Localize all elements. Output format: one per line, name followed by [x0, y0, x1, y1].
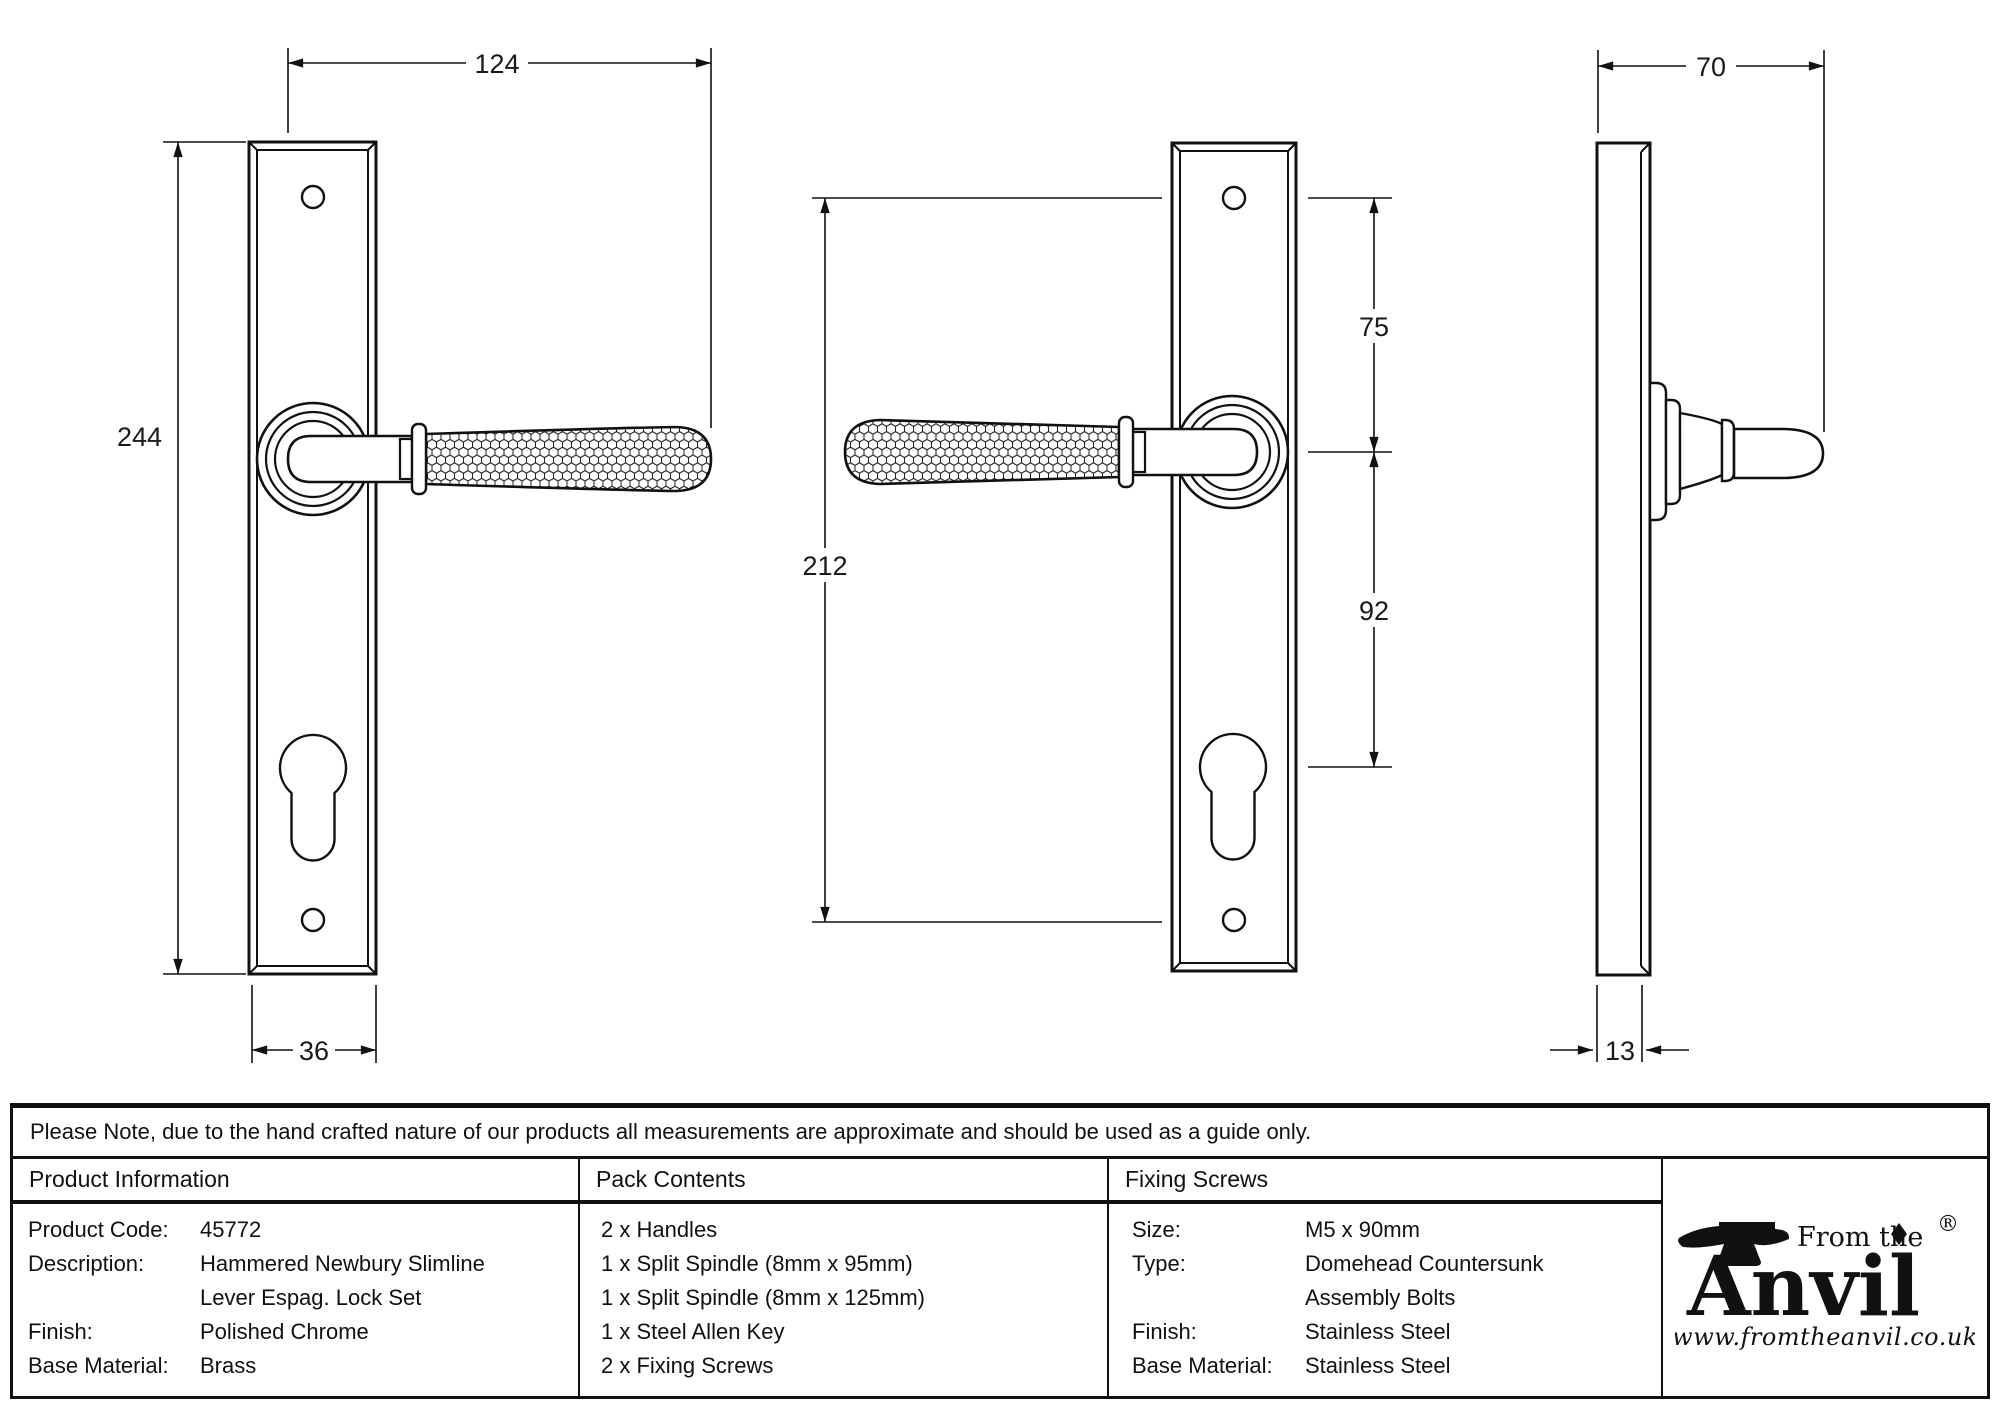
row-value: M5 x 90mm	[1305, 1213, 1661, 1247]
row-label: Base Material:	[1132, 1349, 1305, 1383]
euro-cylinder-keyhole	[280, 735, 346, 861]
list-item: 1 x Steel Allen Key	[601, 1315, 1107, 1349]
list-item: 1 x Split Spindle (8mm x 125mm)	[601, 1281, 1107, 1315]
row-value: Polished Chrome	[200, 1315, 578, 1349]
dim-244-label: 244	[117, 422, 162, 452]
dim-124-label: 124	[474, 49, 519, 79]
dimension-fixing-centres-212	[812, 198, 1162, 922]
dimension-length-124	[288, 48, 711, 428]
logo-anvil: Anvil	[1686, 1239, 1920, 1335]
dim-13-label: 13	[1605, 1036, 1635, 1066]
dim-36-label: 36	[299, 1036, 329, 1066]
screw-hole-top	[302, 186, 324, 208]
screw-hole-bottom-mirrored	[1223, 909, 1245, 931]
row-value: Stainless Steel	[1305, 1315, 1661, 1349]
lever-handle	[288, 424, 711, 494]
row-label	[1132, 1281, 1305, 1315]
dimension-75-92	[1308, 198, 1392, 767]
technical-drawing: 244 124	[0, 0, 2000, 1103]
row-value: Assembly Bolts	[1305, 1281, 1661, 1315]
handle-profile	[1650, 383, 1823, 520]
header-product-information: Product Information	[13, 1159, 580, 1204]
dim-92-label: 92	[1359, 596, 1389, 626]
dimension-projection-70	[1598, 50, 1824, 432]
row-value: Stainless Steel	[1305, 1349, 1661, 1383]
row-label: Finish:	[28, 1315, 200, 1349]
euro-cylinder-keyhole-mirrored	[1200, 734, 1266, 860]
side-profile-view: 70 13	[1550, 49, 1824, 1066]
row-value: 45772	[200, 1213, 578, 1247]
header-fixing-screws: Fixing Screws	[1109, 1159, 1663, 1204]
row-value: Hammered Newbury Slimline	[200, 1247, 578, 1281]
dimension-height-244	[163, 142, 246, 974]
dim-212-label: 212	[802, 551, 847, 581]
screw-hole-top-mirrored	[1223, 187, 1245, 209]
from-the-anvil-logo: From the Anvil ® www.fromtheanvil.co.uk	[1675, 1193, 1975, 1363]
list-item: 2 x Handles	[601, 1213, 1107, 1247]
row-value: Brass	[200, 1349, 578, 1383]
pack-contents-cell: 2 x Handles 1 x Split Spindle (8mm x 95m…	[580, 1204, 1109, 1396]
row-label: Size:	[1132, 1213, 1305, 1247]
fixing-screws-cell: Size: M5 x 90mm Type: Domehead Countersu…	[1109, 1204, 1663, 1396]
brand-logo: From the Anvil ® www.fromtheanvil.co.uk	[1663, 1159, 1987, 1396]
row-label: Finish:	[1132, 1315, 1305, 1349]
lever-handle-mirrored	[845, 417, 1257, 487]
header-pack-contents: Pack Contents	[580, 1159, 1109, 1204]
logo-registered-mark: ®	[1937, 1212, 1959, 1237]
row-label: Type:	[1132, 1247, 1305, 1281]
row-label: Base Material:	[28, 1349, 200, 1383]
row-value: Lever Espag. Lock Set	[200, 1281, 578, 1315]
spec-table: Please Note, due to the hand crafted nat…	[10, 1103, 1990, 1399]
spec-sheet-page: 244 124	[0, 0, 2000, 1406]
dim-75-label: 75	[1359, 312, 1389, 342]
list-item: 1 x Split Spindle (8mm x 95mm)	[601, 1247, 1107, 1281]
measurement-note: Please Note, due to the hand crafted nat…	[13, 1108, 1987, 1159]
row-label: Description:	[28, 1247, 200, 1281]
dim-70-label: 70	[1696, 52, 1726, 82]
row-label: Product Code:	[28, 1213, 200, 1247]
screw-hole-bottom	[302, 909, 324, 931]
list-item: 2 x Fixing Screws	[601, 1349, 1107, 1383]
logo-url: www.fromtheanvil.co.uk	[1675, 1323, 1975, 1351]
product-information-cell: Product Code: 45772 Description: Hammere…	[13, 1204, 580, 1396]
row-label	[28, 1281, 200, 1315]
note-text: Please Note, due to the hand crafted nat…	[30, 1119, 1311, 1145]
plate-profile	[1597, 143, 1650, 975]
front-view-lever-right: 244 124	[117, 46, 711, 1066]
row-value: Domehead Countersunk	[1305, 1247, 1661, 1281]
front-view-lever-left: 212 75 92	[795, 143, 1398, 971]
